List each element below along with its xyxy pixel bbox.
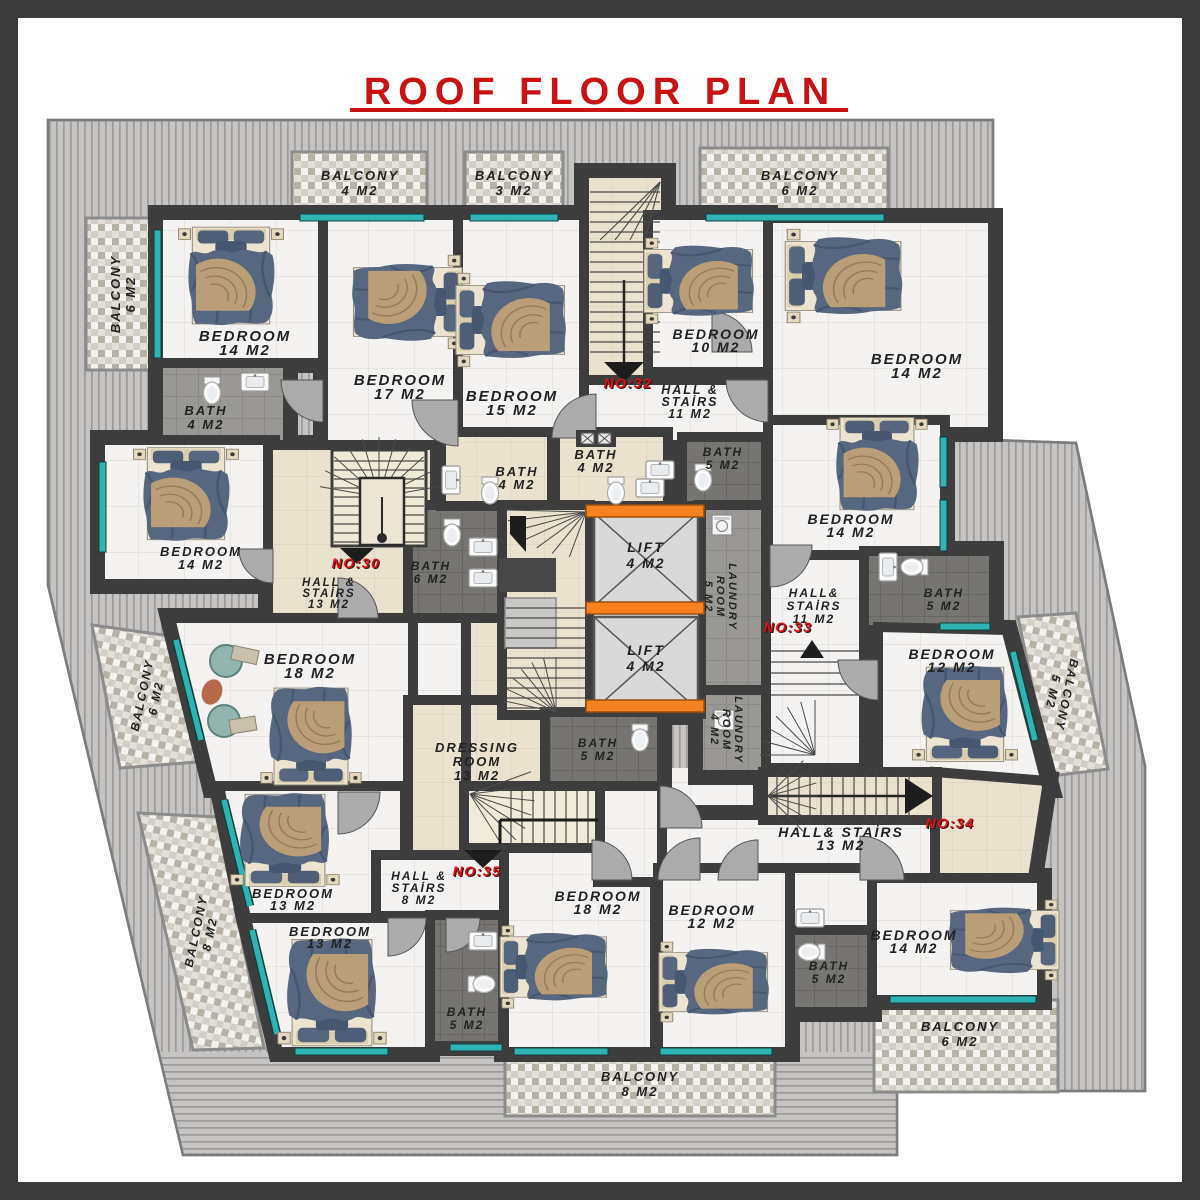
svg-text:HALL &STAİRS13 M2: HALL &STAİRS13 M2: [302, 577, 356, 611]
svg-text:BATH5 M2: BATH5 M2: [924, 586, 964, 613]
svg-text:NO:34: NO:34: [926, 815, 975, 831]
svg-text:BATH5 M2: BATH5 M2: [703, 445, 743, 472]
svg-text:BATH6 M2: BATH6 M2: [411, 559, 451, 586]
svg-text:LIFT4 M2: LIFT4 M2: [625, 642, 665, 674]
svg-text:BATH5 M2: BATH5 M2: [809, 959, 849, 986]
svg-text:HALL &STAİRS11 M2: HALL &STAİRS11 M2: [661, 383, 719, 421]
svg-text:BATH4 M2: BATH4 M2: [574, 447, 617, 475]
svg-text:NO:35: NO:35: [453, 863, 502, 879]
svg-text:LIFT4 M2: LIFT4 M2: [625, 539, 665, 571]
svg-text:BATH5 M2: BATH5 M2: [447, 1005, 487, 1032]
svg-text:BATH5 M2: BATH5 M2: [578, 736, 618, 763]
svg-text:BATH4 M2: BATH4 M2: [184, 403, 227, 432]
svg-text:NO:30: NO:30: [332, 555, 381, 571]
svg-text:NO:33: NO:33: [764, 619, 813, 635]
svg-text:ROOF FLOOR PLAN: ROOF FLOOR PLAN: [364, 71, 836, 113]
svg-text:BATH4 M2: BATH4 M2: [495, 464, 538, 492]
svg-text:NO:32: NO:32: [604, 375, 653, 391]
